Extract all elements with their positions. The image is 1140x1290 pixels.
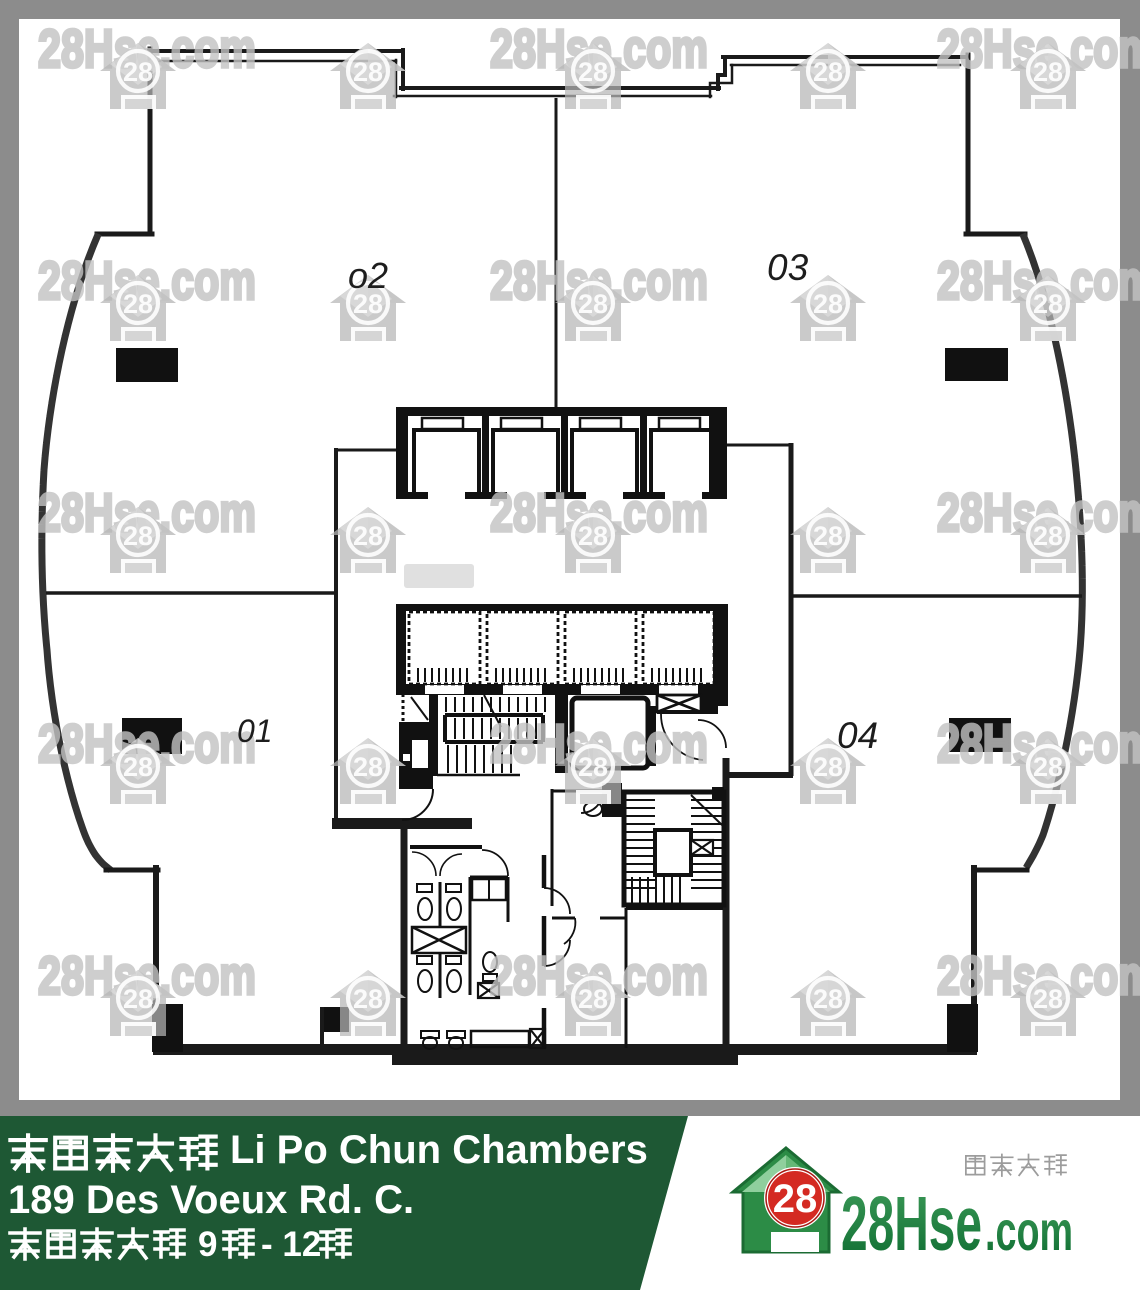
svg-text:28Hse: 28Hse [841, 1181, 982, 1267]
svg-text:28: 28 [773, 1177, 818, 1221]
svg-text:- 12: - 12 [261, 1225, 321, 1264]
svg-text:189 Des Voeux Rd. C.: 189 Des Voeux Rd. C. [8, 1178, 414, 1222]
svg-text:01: 01 [237, 713, 273, 749]
svg-text:9: 9 [198, 1225, 217, 1264]
svg-text:o2: o2 [348, 255, 388, 296]
svg-text:03: 03 [767, 247, 809, 288]
svg-text:04: 04 [837, 715, 878, 756]
svg-text:Li Po Chun Chambers: Li Po Chun Chambers [230, 1128, 648, 1172]
svg-text:.com: .com [985, 1199, 1073, 1262]
